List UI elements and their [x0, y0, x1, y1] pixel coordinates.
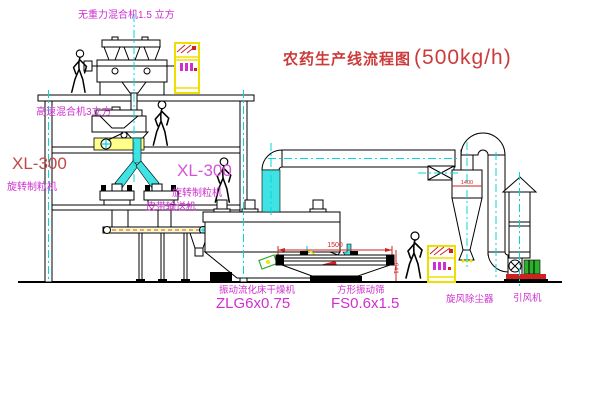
worker-ground [406, 232, 422, 278]
title-text: 农药生产线流程图 [283, 48, 411, 69]
exhaust-duct [262, 150, 455, 212]
drawing-title: 农药生产线流程图 (500kg/h) [283, 46, 512, 70]
label-granulator-left-name: 旋转制粒机 [7, 183, 57, 193]
control-cabinet-ground [428, 246, 455, 282]
worker-second-floor [153, 101, 168, 145]
label-gravity-free-mixer: 无重力混合机1.5 立方 [78, 11, 175, 21]
label-granulator-left-model: XL-300 [12, 155, 67, 172]
belt-conveyor [103, 227, 208, 283]
induced-draft-fan [504, 258, 548, 283]
control-cabinet-top [175, 43, 199, 93]
screen-length-dimension: 1500 [327, 242, 343, 249]
label-granulator-mid-model: XL-300 [177, 162, 232, 179]
label-dryer-model: ZLG6x0.75 [216, 296, 290, 311]
label-cyclone: 旋风除尘器 [446, 295, 494, 305]
label-belt-conveyor: 皮带输送机 [146, 203, 196, 213]
cad-flow-diagram: 1400 [0, 0, 600, 403]
title-capacity: (500kg/h) [414, 46, 512, 70]
label-granulator-mid-name: 旋转制粒机 [172, 189, 222, 199]
granulator-left-unit [100, 184, 134, 205]
label-fan: 引风机 [513, 294, 542, 304]
label-high-speed-mixer: 高速混合机3立方 [36, 108, 112, 118]
label-screen-model: FS0.6x1.5 [331, 296, 399, 311]
